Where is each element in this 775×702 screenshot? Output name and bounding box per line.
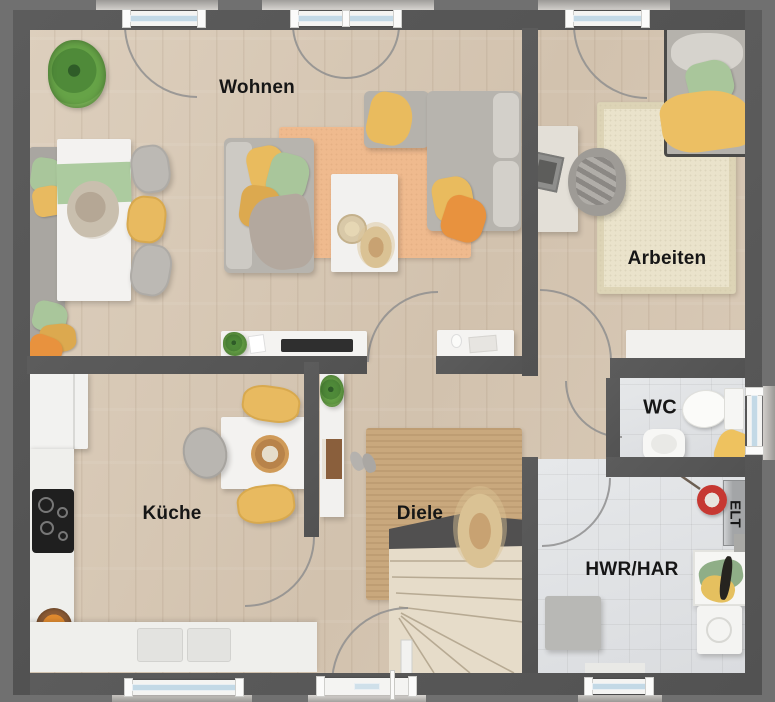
sink-basin [137,628,183,662]
window-glass [132,684,236,691]
window [124,11,204,26]
window [126,680,242,695]
books [322,439,342,479]
table-centerpiece [67,181,119,239]
door-handle [390,670,395,700]
laundry-basket [693,550,748,606]
tray [468,335,497,353]
sofa-back-cushions [493,161,519,227]
salad-bowl [251,435,289,473]
vase-pampas [357,222,395,268]
sink-basin [651,434,677,454]
room-label-hall: Diele [397,503,443,525]
window [567,11,648,26]
office-chair [568,148,626,216]
room-label-electrical: ELT [727,500,744,528]
wall-wc-left [606,378,620,462]
window-double [292,11,400,26]
mop-bucket [697,485,727,515]
sofa [224,138,314,273]
tv-sideboard [221,331,367,358]
sideboard [437,330,514,358]
utility-cabinet [545,596,601,650]
plant-icon [223,332,247,356]
fridge-divider [73,371,75,449]
wall-left [13,10,30,695]
burner [57,507,68,518]
ottoman [364,91,429,148]
room-label-kitchen: Küche [142,503,201,525]
washer-door [706,617,732,643]
blanket-yellow [657,85,754,157]
window-glass [592,683,646,690]
window [747,389,762,453]
dining-table [57,139,131,301]
burner [58,531,68,541]
room-label-utility: HWR/HAR [585,559,678,581]
door-glass [354,683,380,690]
office-table [626,330,748,360]
hall-console [320,371,344,517]
plant-icon [48,40,106,108]
wall-living-office-divider [522,28,538,376]
plant-icon [320,375,344,407]
tv [281,339,353,352]
entry-door [318,678,415,695]
kitchen-counter-bottom [29,622,317,672]
wall-utility-left [522,457,538,673]
floorplan: Wohnen Arbeiten Küche Diele WC HWR/HAR E… [0,0,775,702]
sofa-blanket [245,192,317,274]
burner [38,497,54,513]
sofa-back-cushions [493,93,519,158]
window-glass [573,15,642,22]
pampas-plant [453,486,507,568]
throw-yellow [363,89,417,149]
sofa [427,91,521,231]
chair-blanket [576,157,616,205]
burner [40,521,54,535]
daybed [664,26,750,157]
coffee-table [331,174,398,272]
window [586,679,652,694]
window-glass [130,15,198,22]
kitchen-counter-left [29,449,74,650]
wall-office-south [610,358,745,378]
window-mullion [342,10,350,27]
cooktop [32,489,74,553]
room-label-living: Wohnen [219,77,295,99]
room-label-office: Arbeiten [628,248,707,270]
sink-basin [187,628,231,662]
washing-machine [697,606,742,654]
wall-wc-utility [606,457,745,477]
toilet-tank [724,388,744,430]
wall-right [745,10,762,695]
wall-kitchen-hall [304,362,319,537]
fridge [27,371,88,449]
window-glass [751,395,758,447]
kitchen-table [221,417,311,489]
laptop-screen [535,159,557,184]
candle [451,334,462,348]
room-label-wc: WC [643,397,677,420]
papers [248,334,266,354]
